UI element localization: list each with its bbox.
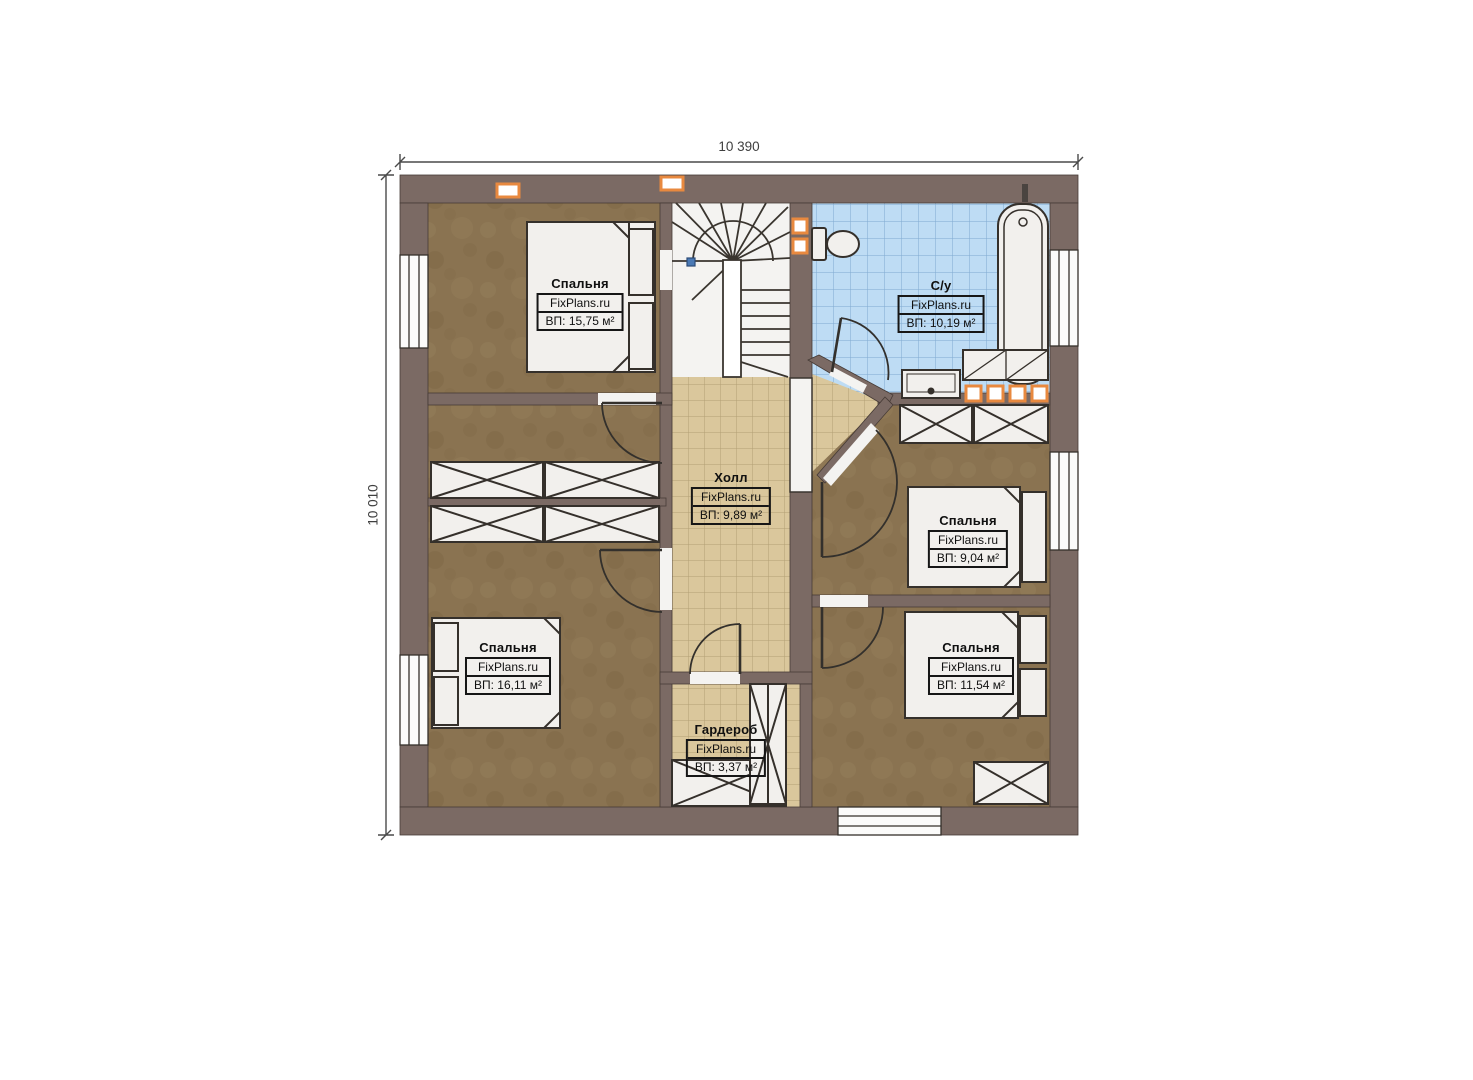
hall-floor — [672, 377, 790, 684]
room-info-box: FixPlans.ru ВП: 10,19 м² — [898, 295, 985, 333]
sink — [902, 370, 960, 398]
wall-wardrobe-east — [800, 684, 812, 807]
room-area: ВП: 3,37 м² — [688, 759, 764, 775]
brand-watermark: FixPlans.ru — [539, 295, 622, 313]
wall-block-2 — [793, 239, 807, 253]
brand-watermark: FixPlans.ru — [693, 489, 769, 507]
toilet — [812, 228, 859, 260]
glass-block-4 — [1032, 386, 1047, 401]
room-info-box: FixPlans.ru ВП: 11,54 м² — [928, 657, 1014, 695]
cased-opening-hall — [790, 378, 812, 492]
closet-row-upper — [431, 462, 659, 498]
closet-bedroom2 — [900, 405, 1048, 443]
bathtub-faucet — [1022, 184, 1028, 202]
wall-exterior-bottom — [400, 807, 1078, 835]
room-name: Спальня — [551, 276, 609, 291]
room-name: Спальня — [939, 513, 997, 528]
brand-watermark: FixPlans.ru — [900, 297, 983, 315]
room-name: Холл — [714, 470, 747, 485]
room-label-bedroom-2: Спальня FixPlans.ru ВП: 9,04 м² — [928, 513, 1008, 568]
room-area: ВП: 11,54 м² — [930, 677, 1012, 693]
wall-block-1 — [793, 219, 807, 233]
window-left-2 — [400, 655, 428, 745]
dimension-height-label: 10 010 — [366, 484, 381, 525]
opening-bedroom3 — [820, 595, 868, 607]
room-label-bedroom-4: Спальня FixPlans.ru ВП: 16,11 м² — [465, 640, 551, 695]
dimension-width-label: 10 390 — [718, 139, 759, 154]
brand-watermark: FixPlans.ru — [930, 659, 1012, 677]
bath-shelf — [963, 350, 1048, 380]
room-label-bathroom: С/у FixPlans.ru ВП: 10,19 м² — [898, 278, 985, 333]
closet-row-lower — [431, 506, 659, 542]
room-area: ВП: 9,04 м² — [930, 550, 1006, 566]
opening-wardrobe — [690, 672, 740, 684]
room-info-box: FixPlans.ru ВП: 9,89 м² — [691, 487, 771, 525]
room-info-box: FixPlans.ru ВП: 9,04 м² — [928, 530, 1008, 568]
opening-bedroom1 — [660, 250, 672, 290]
opening-bedroom4 — [660, 548, 672, 610]
brand-watermark: FixPlans.ru — [688, 741, 764, 759]
window-left-1 — [400, 255, 428, 348]
room-name: С/у — [931, 278, 952, 293]
room-label-bedroom-3: Спальня FixPlans.ru ВП: 11,54 м² — [928, 640, 1014, 695]
room-area: ВП: 16,11 м² — [467, 677, 549, 693]
vent-block-2 — [661, 177, 683, 190]
room-area: ВП: 10,19 м² — [900, 315, 983, 331]
stair-newel — [723, 260, 741, 377]
wall-hall-east — [790, 492, 812, 682]
glass-block-2 — [988, 386, 1003, 401]
room-label-hall: Холл FixPlans.ru ВП: 9,89 м² — [691, 470, 771, 525]
room-info-box: FixPlans.ru ВП: 15,75 м² — [537, 293, 624, 331]
room-name: Гардероб — [694, 722, 757, 737]
room-name: Спальня — [942, 640, 1000, 655]
floor-plan-drawing — [0, 0, 1473, 1080]
window-bottom — [838, 807, 941, 835]
floor-plan-canvas: 10 390 10 010 Спальня FixPlans.ru ВП: 15… — [0, 0, 1473, 1080]
room-area: ВП: 15,75 м² — [539, 313, 622, 329]
room-area: ВП: 9,89 м² — [693, 507, 769, 523]
room-info-box: FixPlans.ru ВП: 3,37 м² — [686, 739, 766, 777]
room-name: Спальня — [479, 640, 537, 655]
window-right-2 — [1050, 452, 1078, 550]
room-info-box: FixPlans.ru ВП: 16,11 м² — [465, 657, 551, 695]
room-label-wardrobe: Гардероб FixPlans.ru ВП: 3,37 м² — [686, 722, 766, 777]
brand-watermark: FixPlans.ru — [467, 659, 549, 677]
stair-marker — [687, 258, 695, 266]
vent-block-1 — [497, 184, 519, 197]
glass-block-1 — [966, 386, 981, 401]
wall-wardrobe-divider — [428, 498, 666, 506]
room-label-bedroom-1: Спальня FixPlans.ru ВП: 15,75 м² — [537, 276, 624, 331]
closet-bedroom3 — [974, 762, 1048, 804]
brand-watermark: FixPlans.ru — [930, 532, 1006, 550]
glass-block-3 — [1010, 386, 1025, 401]
window-right-1 — [1050, 250, 1078, 346]
